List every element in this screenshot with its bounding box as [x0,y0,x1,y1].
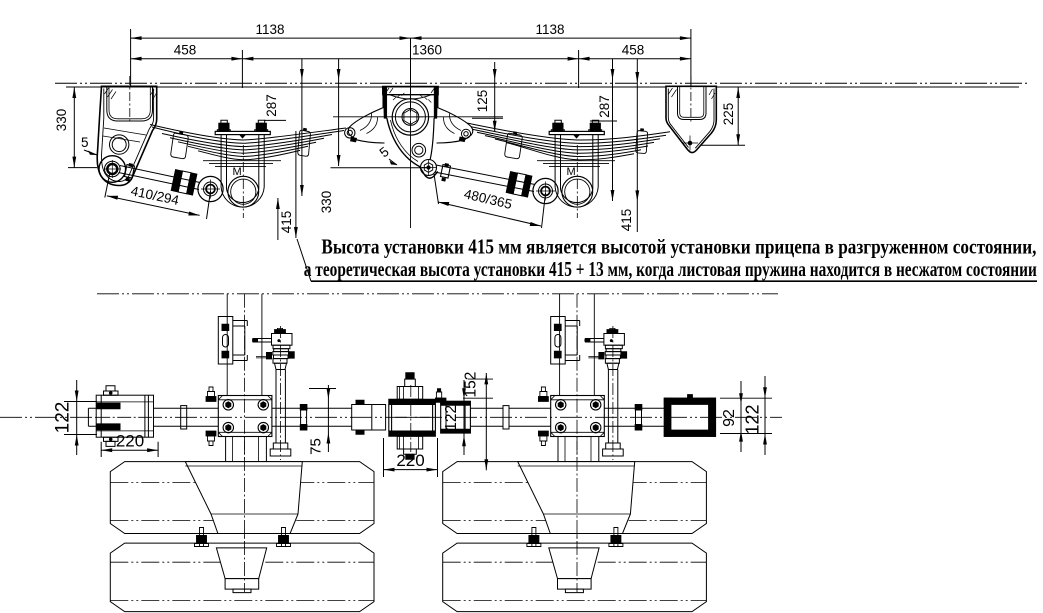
svg-text:M: M [233,166,242,178]
svg-text:152: 152 [463,372,480,398]
svg-text:5: 5 [81,135,89,150]
svg-text:92: 92 [721,409,738,427]
svg-text:122: 122 [53,402,74,434]
svg-text:220: 220 [396,451,424,470]
svg-text:220: 220 [116,432,144,451]
svg-text:1138: 1138 [255,22,284,37]
svg-text:415: 415 [619,209,634,232]
svg-text:1138: 1138 [535,22,564,37]
svg-text:122: 122 [443,405,460,431]
svg-text:330: 330 [319,191,334,214]
svg-text:287: 287 [597,95,612,118]
svg-text:5: 5 [377,144,392,160]
svg-text:458: 458 [622,43,645,58]
svg-text:330: 330 [54,109,69,132]
svg-text:а теоретическая высота установ: а теоретическая высота установки 415 + 1… [304,257,1037,281]
svg-text:Высота установки 415 мм являе: Высота установки 415 мм является высотой… [321,235,1036,259]
svg-text:1360: 1360 [412,43,442,58]
svg-text:287: 287 [264,94,279,117]
svg-text:122: 122 [743,404,763,434]
svg-text:480/365: 480/365 [463,186,514,212]
svg-text:125: 125 [475,90,490,113]
svg-text:415: 415 [279,211,294,234]
svg-text:458: 458 [174,43,197,58]
svg-text:75: 75 [308,438,325,455]
svg-text:225: 225 [721,103,736,126]
